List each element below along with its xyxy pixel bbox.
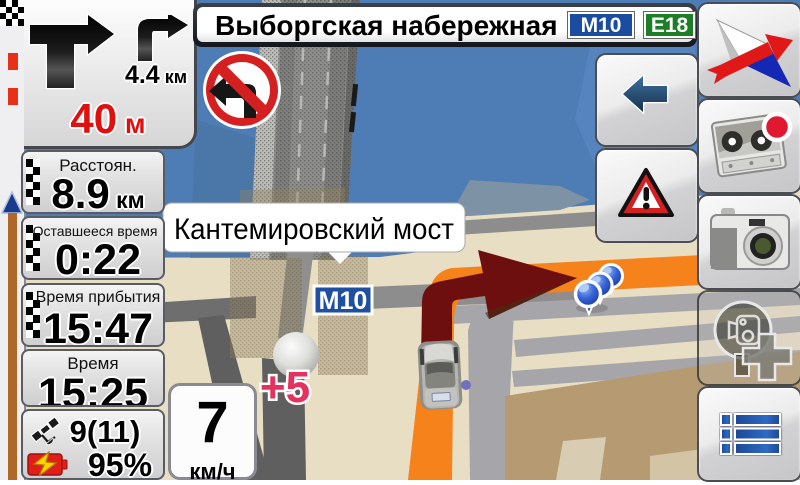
svg-text:+5: +5 xyxy=(260,363,310,412)
svg-text:Кантемировский мост: Кантемировский мост xyxy=(174,213,454,246)
svg-text:M10: M10 xyxy=(319,287,368,315)
